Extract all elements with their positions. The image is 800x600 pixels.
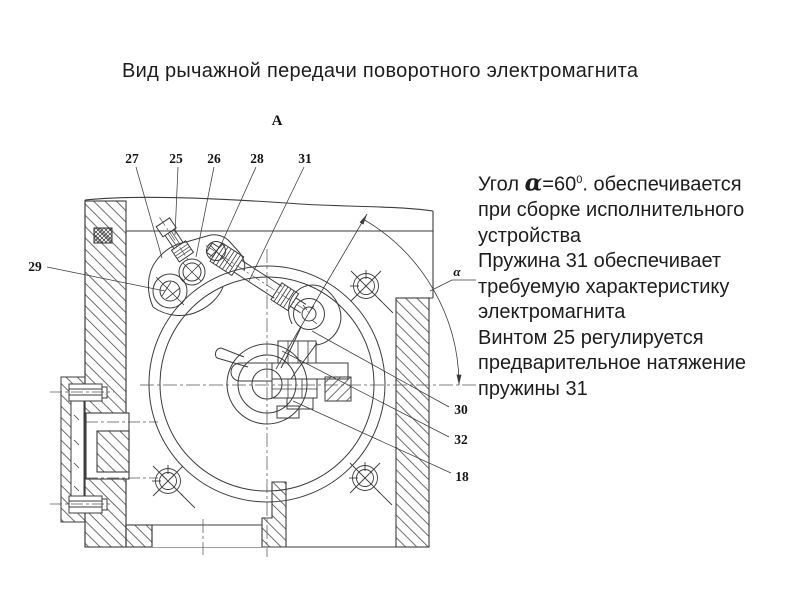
label-32: 32: [454, 432, 468, 447]
bracket-screw-top: [69, 384, 107, 401]
technical-drawing: А 27 25 26 28 31 29 30 32 18 α: [0, 0, 800, 600]
central-hub: [215, 341, 351, 424]
alpha-leader: [430, 280, 476, 291]
leader-26: [196, 167, 214, 257]
leader-28: [220, 167, 256, 247]
label-25: 25: [169, 151, 183, 166]
bolt-bottom-left: [152, 465, 195, 508]
bracket-screw-bottom: [69, 496, 107, 513]
leader-25: [175, 167, 178, 235]
left-wall-hatch: [85, 201, 126, 547]
hub-lug: [231, 363, 272, 381]
label-29: 29: [28, 259, 42, 274]
label-26: 26: [207, 151, 221, 166]
bracket-window: [71, 398, 84, 500]
pedestal: [262, 482, 286, 547]
angle-symbol-label: α: [453, 264, 461, 279]
leader-31: [249, 167, 304, 281]
leader-27: [136, 167, 162, 258]
seal-block: [94, 228, 112, 243]
recess-block: [97, 431, 129, 472]
label-30: 30: [454, 402, 468, 417]
right-wall-hatch: [396, 298, 429, 547]
label-28: 28: [250, 151, 264, 166]
armature-blocks: [272, 341, 351, 418]
roller-26: [179, 259, 205, 285]
top-break-edge: [85, 197, 433, 211]
spring-31: [200, 236, 316, 322]
angle-dimension: [276, 214, 476, 385]
roller-29: [153, 274, 187, 308]
bolt-bottom-right: [349, 462, 392, 505]
bottom-corner-hatch: [126, 525, 152, 547]
label-18: 18: [455, 469, 469, 484]
view-label: А: [272, 113, 283, 129]
label-31: 31: [298, 151, 312, 166]
arrowhead-bottom: [457, 375, 462, 386]
label-27: 27: [125, 151, 139, 166]
housing-outline: [85, 197, 433, 547]
slide: Вид рычажной передачи поворотного электр…: [0, 0, 800, 600]
